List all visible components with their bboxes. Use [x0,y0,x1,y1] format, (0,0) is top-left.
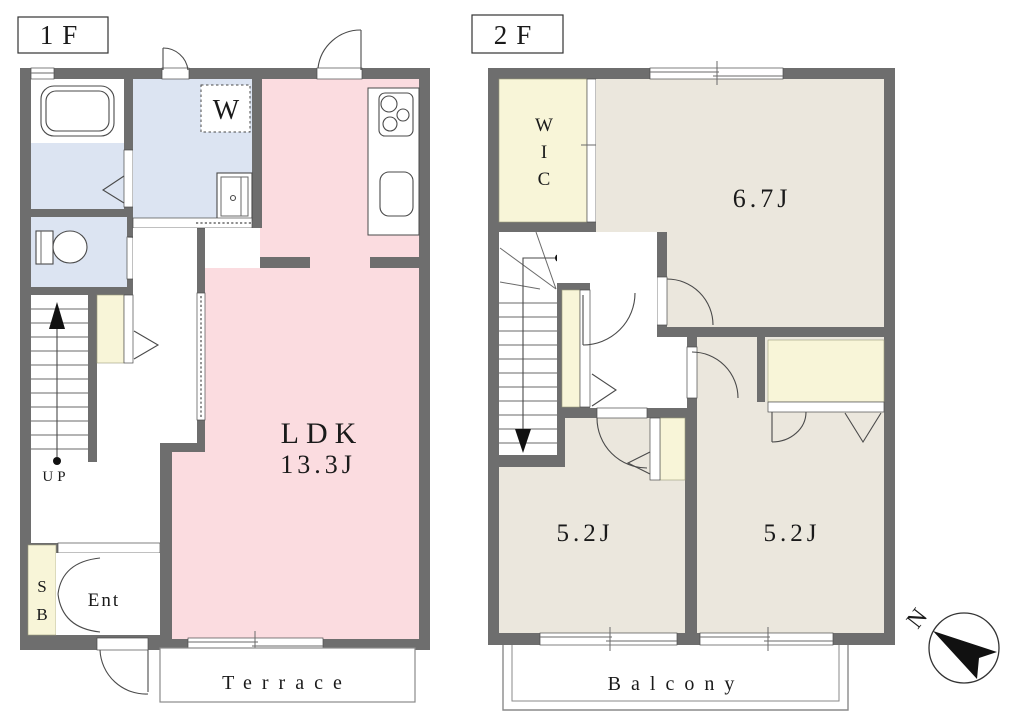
wic-label-line3: C [538,169,551,190]
back-door-right [317,30,362,79]
staircase-1f: UP [31,295,88,485]
bedroom-right: 5.2J [687,337,884,651]
shoebox-label-line1: S [37,577,46,596]
kitchen-sink [380,172,413,216]
wic-label-line1: W [535,115,553,136]
floor1-plan: 1F W [18,17,430,702]
toilet-bowl [53,231,87,263]
ldk-sliding-door [197,293,205,420]
entrance: S B Ent [28,543,160,694]
bedroom-right-size: 5.2J [764,520,821,547]
front-door-opening [97,638,148,650]
terrace-label: Terrace [222,672,352,694]
north-compass: N [902,604,999,683]
floor2-plan: 2F W I C 6.7J [472,15,895,710]
terrace: Terrace [160,648,415,702]
north-label: N [902,604,933,634]
north-arrow [933,631,997,679]
floorplan-page: 1F W [0,0,1024,721]
washroom: W [133,79,252,228]
bedroom-left-size: 5.2J [557,520,614,547]
entrance-label: Ent [88,590,120,611]
toilet-tank [36,231,53,264]
wic-label-line2: I [541,142,547,163]
washroom-sliding-door [133,218,252,228]
fridge-space [205,228,260,268]
bathroom [31,68,133,209]
floor1-label: 1F [40,20,87,50]
kitchen-counter [368,88,419,235]
back-door-left [162,48,189,79]
wic-sliding-door [587,79,596,222]
stairs-up-label: UP [42,469,69,485]
vanity-sink [217,173,252,220]
floor2-label: 2F [494,20,541,50]
ldk-name: LDK [281,417,364,450]
bedroom-main-size: 6.7J [733,184,792,213]
floorplan-canvas: 1F W [0,0,1024,721]
shoebox-label-line2: B [36,605,47,624]
washer-label: W [213,95,240,126]
balcony: Balcony [503,645,848,710]
wic: W I C [499,79,602,222]
ldk-size: 13.3J [280,450,356,479]
bathtub [41,86,114,136]
entrance-step [58,543,160,553]
balcony-label: Balcony [608,673,745,695]
front-door-swing [100,650,148,694]
